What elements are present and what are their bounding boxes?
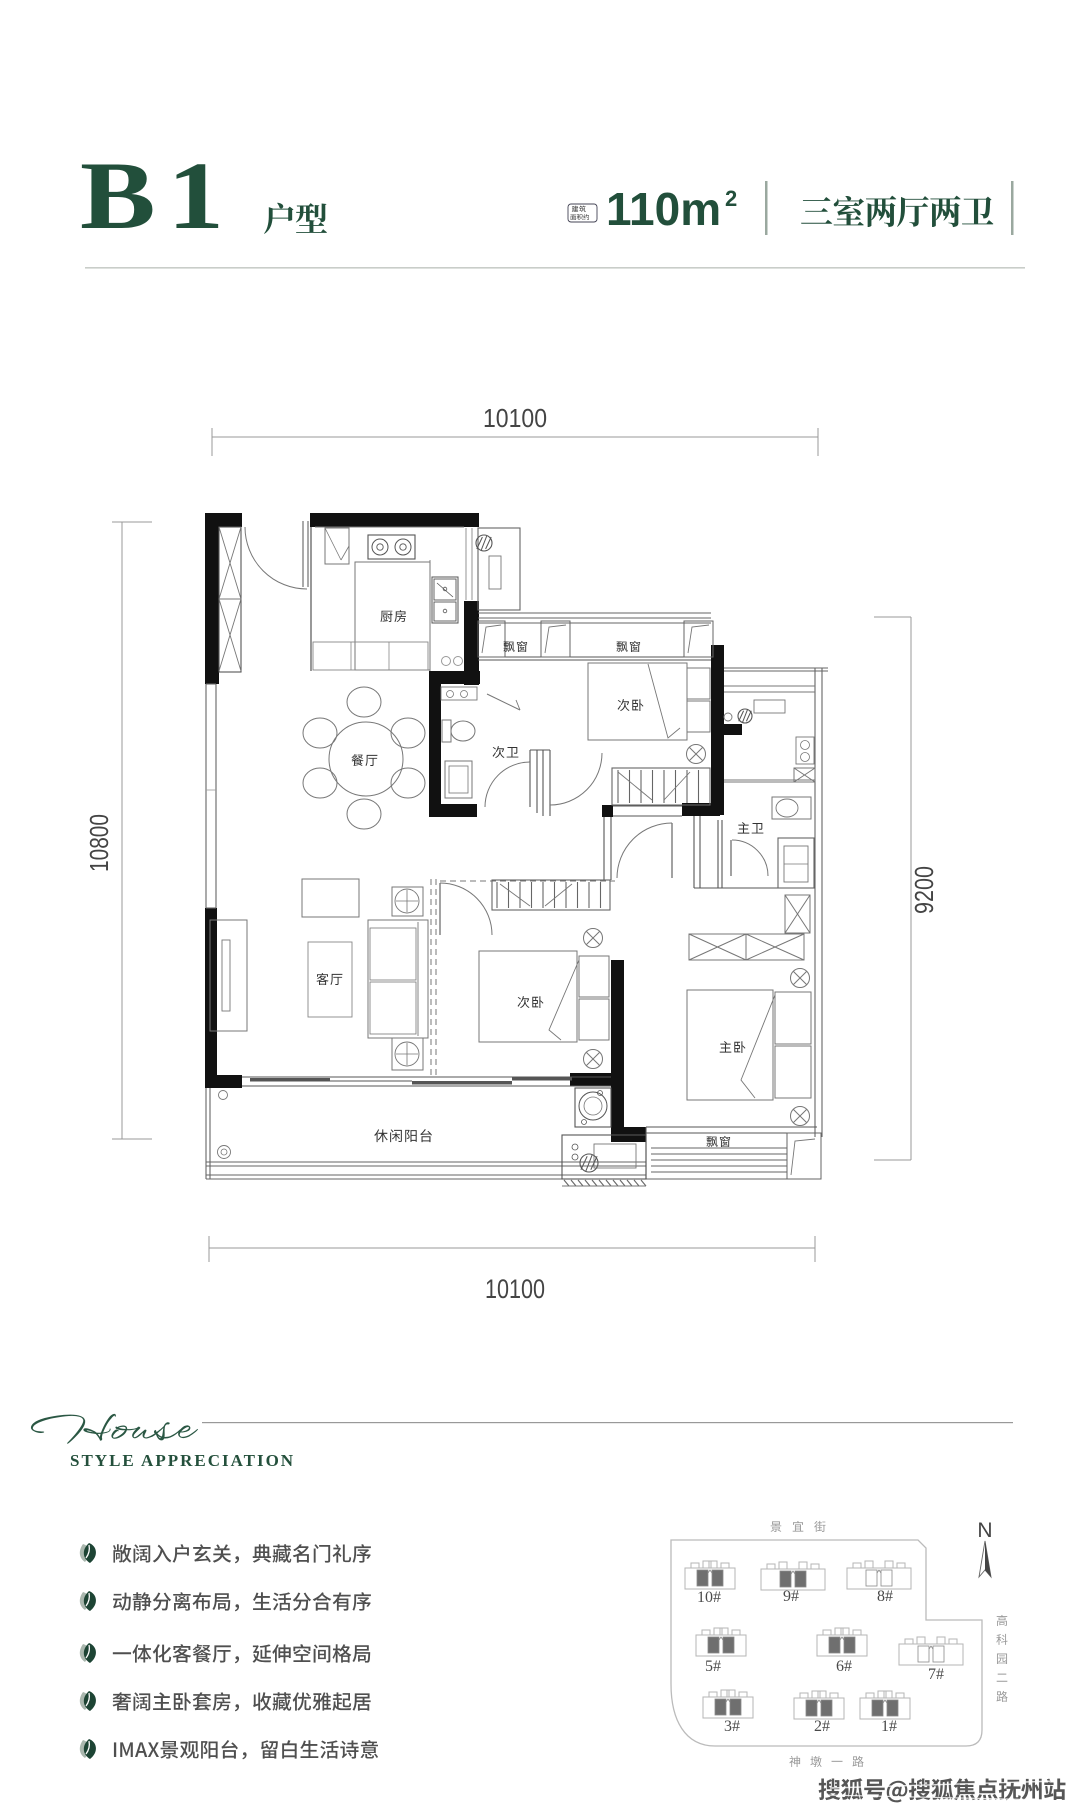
svg-text:2: 2 [725,186,737,211]
svg-text:3#: 3# [724,1718,740,1735]
svg-text:10800: 10800 [84,814,114,872]
svg-text:9#: 9# [783,1588,799,1605]
svg-text:STYLE APPRECIATION: STYLE APPRECIATION [70,1451,295,1470]
svg-text:2#: 2# [814,1718,830,1735]
svg-text:10#: 10# [697,1589,721,1606]
svg-text:8#: 8# [877,1588,893,1605]
svg-text:6#: 6# [836,1658,852,1675]
svg-text:9200: 9200 [909,866,939,914]
svg-text:5#: 5# [705,1658,721,1675]
svg-text:7#: 7# [928,1666,944,1683]
svg-text:10100: 10100 [485,1274,545,1304]
svg-text:1#: 1# [881,1718,897,1735]
svg-text:N: N [977,1519,992,1542]
svg-text:B1: B1 [80,142,236,249]
svg-text:110m: 110m [606,183,721,235]
svg-text:10100: 10100 [483,403,547,433]
